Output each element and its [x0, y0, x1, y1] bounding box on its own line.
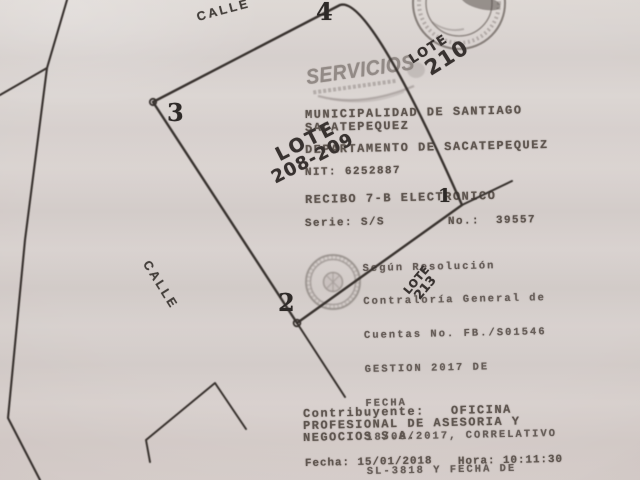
watermark-swoosh [318, 62, 425, 102]
corner-label-1: 1 [438, 185, 451, 207]
neighbor-parcel-mark [146, 383, 246, 462]
boundary-extension-south [297, 323, 345, 397]
street-boundary-branch [0, 68, 47, 95]
boundary-extension-northeast [462, 181, 512, 205]
corner-label-3: 3 [167, 98, 184, 127]
street-boundary-left-path [8, 0, 67, 480]
corner-label-2: 2 [278, 288, 295, 317]
corner-label-4: 4 [316, 0, 333, 26]
scanned-plan-photo: SERVICIOS MUNICIPALIDAD DE SANTIAGO SACA… [0, 0, 640, 480]
municipal-seal [306, 255, 360, 309]
survey-linework [0, 0, 640, 480]
